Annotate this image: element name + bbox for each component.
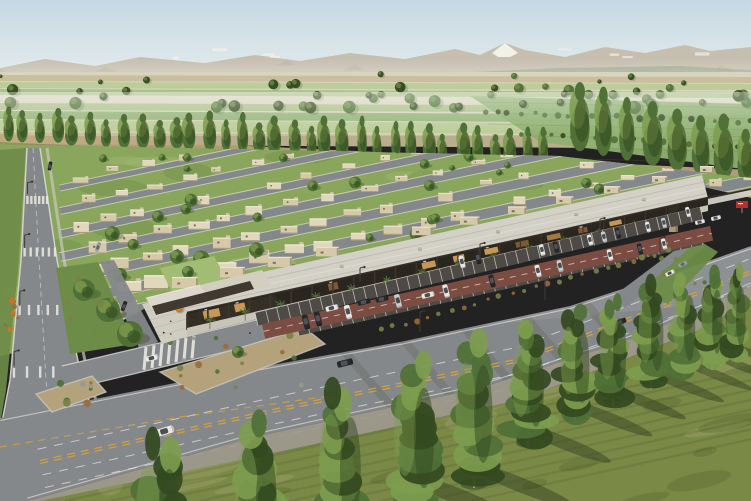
- render-frame: [0, 0, 751, 501]
- aerial-render: [0, 0, 751, 501]
